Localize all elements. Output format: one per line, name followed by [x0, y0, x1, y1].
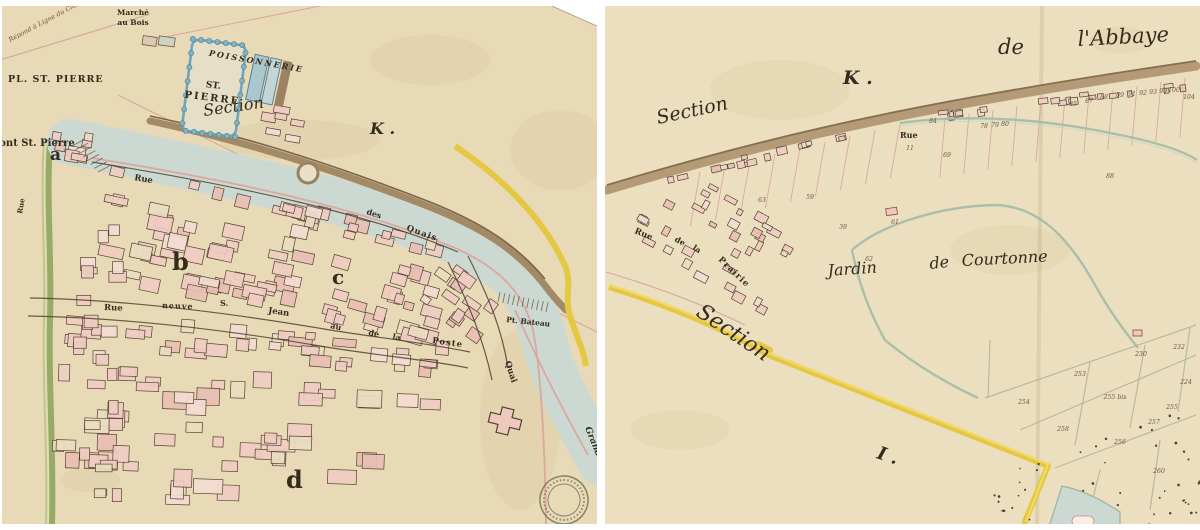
water-corner-building [1072, 516, 1094, 524]
parcel-number: 93 [1149, 89, 1157, 96]
rue-neuve-label-3: S. [220, 298, 228, 308]
parcel-number: 69 [943, 152, 951, 159]
parcel-number: 79 [991, 122, 999, 129]
parcel-number: 88 [1106, 173, 1114, 180]
parcel-number: 256 [1113, 439, 1126, 446]
parcel-number: 87 [1085, 98, 1093, 105]
map-right-panel: Section K . de l'Abbaye Rue Rue de la Pr… [605, 6, 1200, 524]
abbaye-label-name: l'Abbaye [1077, 22, 1169, 51]
parcel-number: 59 [806, 194, 814, 201]
rue-neuve-label-1: Rue [104, 303, 124, 314]
marche-au-bois-label-2: au Bois [117, 18, 148, 27]
pont-st-pierre-label: Pont St. Pierre [2, 138, 75, 149]
rue-neuve-label-2: neuve [162, 300, 194, 311]
parcel-number: 61 [891, 219, 899, 226]
parcel-number: 257 [1147, 419, 1160, 426]
parcel-number: 80 [1001, 121, 1009, 128]
parcel-number: 99 [1159, 88, 1167, 95]
parcel-number: 39 [839, 224, 847, 231]
block-letter-a: a [50, 145, 61, 165]
parcel-number: 230 [1134, 351, 1147, 358]
block-letter-c: c [332, 265, 344, 289]
parcel-number: 255 bis [1103, 394, 1127, 401]
isolated-house [886, 207, 898, 215]
parcel-number: 260 [1152, 468, 1165, 475]
parcel-number: 11 [906, 145, 914, 152]
jardin-label-2: de [928, 252, 950, 273]
parcel-number: 253 [1073, 371, 1086, 378]
parcel-number: 232 [1172, 344, 1185, 351]
parcel-number: 78 [980, 123, 988, 130]
place-st-pierre-label: PL. ST. PIERRE [8, 74, 104, 85]
marche-au-bois-label-1: Marché [117, 8, 149, 17]
church-label-1: ST. [205, 80, 221, 92]
parcel-number: 258 [1056, 426, 1069, 433]
parcel-number: 100 [1168, 87, 1180, 94]
parcel-number: 89 [1116, 92, 1124, 99]
abbaye-label-de: de [998, 35, 1024, 59]
parcel-number: 63 [758, 197, 766, 204]
parcel-number: 224 [1179, 379, 1192, 386]
parcel-number: 104 [1183, 94, 1195, 101]
isolated-house [1133, 330, 1142, 336]
screenshot-root: Répond à Ligne du Clocher Marché au Bois… [0, 0, 1200, 530]
parcel-number: 255 [1165, 404, 1178, 411]
parcel-number: 254 [1017, 399, 1030, 406]
map-left-panel: Répond à Ligne du Clocher Marché au Bois… [2, 6, 597, 524]
rue-small-label: Rue [900, 130, 918, 140]
quay-tower [298, 163, 318, 183]
parcel-number: 84 [929, 118, 937, 125]
parcel-number: 85 [1069, 101, 1077, 108]
block-letter-b: b [172, 247, 189, 276]
parcel-number: 62 [865, 256, 873, 263]
parcel-number: 92 [1139, 90, 1147, 97]
parcel-number: 91 [1128, 91, 1136, 98]
parcel-number: 88 [1100, 94, 1108, 101]
section-letter-label: K . [369, 119, 395, 138]
section-k-letter-label: K . [842, 67, 873, 89]
block-letter-d: d [286, 465, 303, 494]
